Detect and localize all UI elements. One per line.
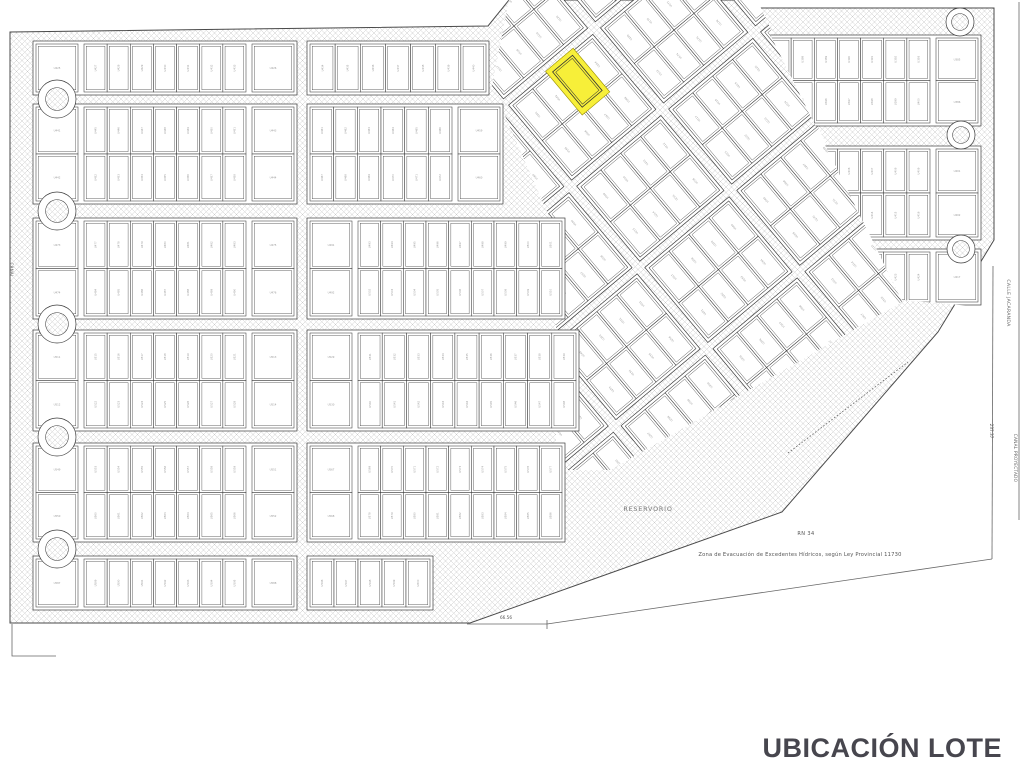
svg-text:U477: U477 bbox=[94, 241, 98, 248]
svg-text:U498: U498 bbox=[481, 241, 485, 248]
svg-text:U582: U582 bbox=[458, 512, 462, 519]
label-canal-left: CANAL bbox=[9, 263, 14, 278]
svg-text:U423: U423 bbox=[893, 273, 897, 280]
svg-text:U594: U594 bbox=[209, 579, 213, 586]
svg-text:U451: U451 bbox=[232, 127, 236, 134]
svg-text:U367: U367 bbox=[967, 360, 975, 368]
label-route: RN 34 bbox=[797, 531, 814, 537]
svg-text:U491: U491 bbox=[328, 243, 335, 247]
svg-text:U407: U407 bbox=[870, 167, 874, 174]
svg-text:U537: U537 bbox=[513, 353, 517, 360]
svg-text:U396: U396 bbox=[824, 98, 828, 105]
svg-text:U503: U503 bbox=[390, 288, 394, 295]
svg-text:U540: U540 bbox=[368, 400, 372, 407]
svg-text:U557: U557 bbox=[186, 465, 190, 472]
svg-text:U485: U485 bbox=[117, 288, 121, 295]
svg-text:U565: U565 bbox=[209, 512, 213, 519]
svg-text:U521: U521 bbox=[232, 353, 236, 360]
svg-text:U409: U409 bbox=[916, 167, 920, 174]
svg-text:U561: U561 bbox=[117, 512, 121, 519]
svg-text:U544: U544 bbox=[465, 400, 469, 407]
svg-text:U329: U329 bbox=[1014, 123, 1022, 131]
svg-text:U599: U599 bbox=[392, 579, 396, 586]
svg-text:U489: U489 bbox=[209, 288, 213, 295]
svg-text:U344: U344 bbox=[712, 575, 720, 583]
svg-text:U392: U392 bbox=[893, 55, 897, 62]
svg-text:U427: U427 bbox=[94, 64, 98, 71]
label-canal-proyectado: CANAL PROYECTADO bbox=[1013, 434, 1018, 483]
svg-text:U592: U592 bbox=[163, 579, 167, 586]
svg-text:U588: U588 bbox=[270, 581, 277, 585]
svg-text:U542: U542 bbox=[417, 400, 421, 407]
svg-text:U364: U364 bbox=[958, 308, 966, 316]
svg-text:U558: U558 bbox=[209, 465, 213, 472]
svg-text:U454: U454 bbox=[140, 174, 144, 181]
svg-text:U488: U488 bbox=[186, 288, 190, 295]
svg-text:U478: U478 bbox=[117, 241, 121, 248]
svg-text:U058: U058 bbox=[325, 9, 333, 17]
svg-text:U415: U415 bbox=[893, 211, 897, 218]
plat-map: U001U002U003U004U005U006U007U008U009U010… bbox=[0, 0, 1024, 768]
svg-text:U444: U444 bbox=[270, 176, 277, 180]
svg-text:U338: U338 bbox=[642, 573, 650, 581]
svg-text:U456: U456 bbox=[186, 174, 190, 181]
svg-text:U439: U439 bbox=[446, 64, 450, 71]
svg-text:U438: U438 bbox=[421, 64, 425, 71]
svg-text:U562: U562 bbox=[140, 512, 144, 519]
svg-text:U480: U480 bbox=[163, 241, 167, 248]
svg-text:U449: U449 bbox=[186, 127, 190, 134]
svg-text:U358: U358 bbox=[856, 454, 864, 462]
svg-text:U373: U373 bbox=[1020, 316, 1024, 324]
svg-text:U506: U506 bbox=[458, 288, 462, 295]
svg-text:U286: U286 bbox=[995, 60, 1003, 68]
svg-text:U460: U460 bbox=[476, 176, 483, 180]
svg-text:U360: U360 bbox=[895, 420, 903, 428]
svg-text:U447: U447 bbox=[140, 127, 144, 134]
svg-text:U490: U490 bbox=[232, 288, 236, 295]
svg-text:U500: U500 bbox=[526, 241, 530, 248]
svg-text:U563: U563 bbox=[163, 512, 167, 519]
svg-text:U430: U430 bbox=[163, 64, 167, 71]
svg-text:U579: U579 bbox=[390, 512, 394, 519]
svg-text:U474: U474 bbox=[54, 290, 61, 294]
svg-text:U572: U572 bbox=[435, 465, 439, 472]
svg-text:U553: U553 bbox=[94, 465, 98, 472]
svg-text:U389: U389 bbox=[824, 55, 828, 62]
svg-text:U598: U598 bbox=[368, 579, 372, 586]
svg-text:U443: U443 bbox=[270, 129, 277, 133]
svg-text:U584: U584 bbox=[503, 512, 507, 519]
svg-text:U576: U576 bbox=[526, 465, 530, 472]
svg-text:U548: U548 bbox=[562, 400, 566, 407]
svg-text:U401: U401 bbox=[954, 169, 961, 173]
svg-text:U455: U455 bbox=[163, 174, 167, 181]
svg-text:U386: U386 bbox=[954, 100, 961, 104]
svg-text:U512: U512 bbox=[54, 402, 61, 406]
svg-text:U569: U569 bbox=[367, 465, 371, 472]
svg-text:U369: U369 bbox=[990, 281, 998, 289]
svg-text:U505: U505 bbox=[435, 288, 439, 295]
southwest-corner-mark bbox=[12, 624, 56, 656]
svg-text:U587: U587 bbox=[54, 581, 61, 585]
svg-text:U446: U446 bbox=[117, 127, 121, 134]
svg-text:U507: U507 bbox=[481, 288, 485, 295]
svg-text:U519: U519 bbox=[186, 353, 190, 360]
ubicacion-lote-page: U001U002U003U004U005U006U007U008U009U010… bbox=[0, 0, 1024, 768]
label-zona: Zona de Evacuación de Excedentes Hídrico… bbox=[698, 551, 901, 558]
svg-text:U343: U343 bbox=[692, 591, 700, 599]
svg-text:U534: U534 bbox=[441, 353, 445, 360]
svg-text:U571: U571 bbox=[413, 465, 417, 472]
svg-text:U550: U550 bbox=[54, 514, 61, 518]
svg-text:U513: U513 bbox=[270, 355, 277, 359]
svg-text:U495: U495 bbox=[413, 241, 417, 248]
svg-text:U530: U530 bbox=[328, 402, 335, 406]
svg-text:U531: U531 bbox=[368, 353, 372, 360]
svg-text:U522: U522 bbox=[94, 400, 98, 407]
svg-text:U393: U393 bbox=[916, 55, 920, 62]
svg-text:U529: U529 bbox=[328, 355, 335, 359]
svg-text:U450: U450 bbox=[209, 127, 213, 134]
svg-text:U570: U570 bbox=[390, 465, 394, 472]
svg-text:U573: U573 bbox=[458, 465, 462, 472]
svg-text:U525: U525 bbox=[163, 400, 167, 407]
svg-text:U535: U535 bbox=[465, 353, 469, 360]
svg-text:U470: U470 bbox=[391, 174, 395, 181]
svg-text:U465: U465 bbox=[415, 127, 419, 134]
svg-text:U476: U476 bbox=[270, 290, 277, 294]
svg-text:U445: U445 bbox=[94, 127, 98, 134]
svg-text:U008: U008 bbox=[235, 6, 243, 14]
svg-text:U366: U366 bbox=[948, 377, 956, 385]
svg-text:U408: U408 bbox=[893, 167, 897, 174]
svg-text:U502: U502 bbox=[367, 288, 371, 295]
svg-text:U591: U591 bbox=[140, 579, 144, 586]
svg-text:U462: U462 bbox=[344, 127, 348, 134]
svg-text:U523: U523 bbox=[117, 400, 121, 407]
svg-text:U442: U442 bbox=[54, 176, 61, 180]
svg-text:U370: U370 bbox=[1010, 264, 1018, 272]
svg-text:U577: U577 bbox=[549, 465, 553, 472]
east-boundary bbox=[992, 266, 993, 559]
svg-text:U596: U596 bbox=[320, 579, 324, 586]
svg-text:U539: U539 bbox=[562, 353, 566, 360]
svg-text:U441: U441 bbox=[54, 129, 61, 133]
svg-text:U585: U585 bbox=[526, 512, 530, 519]
svg-text:U472: U472 bbox=[438, 174, 442, 181]
svg-text:U567: U567 bbox=[328, 467, 335, 471]
svg-text:U390: U390 bbox=[847, 55, 851, 62]
svg-text:U509: U509 bbox=[526, 288, 530, 295]
svg-text:U359: U359 bbox=[876, 437, 884, 445]
svg-text:U552: U552 bbox=[270, 514, 277, 518]
svg-text:U440: U440 bbox=[471, 64, 475, 71]
svg-text:U435: U435 bbox=[346, 64, 350, 71]
svg-text:U399: U399 bbox=[893, 98, 897, 105]
svg-text:U494: U494 bbox=[390, 241, 394, 248]
svg-text:U574: U574 bbox=[481, 465, 485, 472]
svg-text:U341: U341 bbox=[652, 625, 660, 633]
svg-text:U342: U342 bbox=[672, 608, 680, 616]
svg-text:U526: U526 bbox=[186, 400, 190, 407]
svg-text:U578: U578 bbox=[367, 512, 371, 519]
svg-text:U546: U546 bbox=[513, 400, 517, 407]
svg-text:U586: U586 bbox=[549, 512, 553, 519]
svg-text:U397: U397 bbox=[847, 98, 851, 105]
svg-text:U237: U237 bbox=[907, 0, 915, 4]
svg-text:U365: U365 bbox=[928, 393, 936, 401]
svg-text:U514: U514 bbox=[270, 402, 277, 406]
svg-text:U564: U564 bbox=[186, 512, 190, 519]
svg-text:U437: U437 bbox=[396, 64, 400, 71]
svg-text:U559: U559 bbox=[232, 465, 236, 472]
svg-text:U551: U551 bbox=[270, 467, 277, 471]
svg-text:U528: U528 bbox=[232, 400, 236, 407]
svg-text:U600: U600 bbox=[416, 579, 420, 586]
svg-text:U328: U328 bbox=[1011, 185, 1019, 193]
svg-text:U473: U473 bbox=[54, 243, 61, 247]
svg-text:U352: U352 bbox=[804, 498, 812, 506]
svg-text:U499: U499 bbox=[503, 241, 507, 248]
svg-text:U497: U497 bbox=[458, 241, 462, 248]
svg-text:U532: U532 bbox=[392, 353, 396, 360]
svg-text:U432: U432 bbox=[209, 64, 213, 71]
svg-text:U448: U448 bbox=[163, 127, 167, 134]
svg-text:U351: U351 bbox=[784, 514, 792, 522]
svg-text:U549: U549 bbox=[54, 467, 61, 471]
svg-text:U428: U428 bbox=[117, 64, 121, 71]
svg-text:U463: U463 bbox=[367, 127, 371, 134]
svg-text:U114: U114 bbox=[485, 13, 493, 21]
svg-text:U589: U589 bbox=[94, 579, 98, 586]
svg-text:U433: U433 bbox=[232, 64, 236, 71]
svg-text:U536: U536 bbox=[489, 353, 493, 360]
svg-text:U541: U541 bbox=[392, 400, 396, 407]
svg-text:U461: U461 bbox=[320, 127, 324, 134]
svg-text:U466: U466 bbox=[438, 127, 442, 134]
svg-text:U566: U566 bbox=[232, 512, 236, 519]
svg-text:U508: U508 bbox=[503, 288, 507, 295]
svg-text:U575: U575 bbox=[503, 465, 507, 472]
svg-text:U459: U459 bbox=[476, 129, 483, 133]
svg-text:U464: U464 bbox=[391, 127, 395, 134]
svg-text:U524: U524 bbox=[140, 400, 144, 407]
svg-text:U431: U431 bbox=[186, 64, 190, 71]
svg-text:U357: U357 bbox=[836, 471, 844, 479]
svg-text:U002: U002 bbox=[165, 4, 173, 12]
svg-text:U424: U424 bbox=[916, 273, 920, 280]
label-dim-south: 66.56 bbox=[500, 615, 512, 620]
svg-text:U468: U468 bbox=[344, 174, 348, 181]
svg-text:U479: U479 bbox=[140, 241, 144, 248]
svg-text:U368: U368 bbox=[987, 343, 995, 351]
svg-text:U595: U595 bbox=[232, 579, 236, 586]
svg-text:U467: U467 bbox=[320, 174, 324, 181]
svg-text:U554: U554 bbox=[117, 465, 121, 472]
svg-text:U406: U406 bbox=[847, 167, 851, 174]
svg-text:U481: U481 bbox=[186, 241, 190, 248]
svg-text:U425: U425 bbox=[54, 66, 61, 70]
svg-text:U429: U429 bbox=[140, 64, 144, 71]
svg-text:U416: U416 bbox=[916, 211, 920, 218]
svg-text:U527: U527 bbox=[209, 400, 213, 407]
svg-text:U469: U469 bbox=[367, 174, 371, 181]
svg-text:U350: U350 bbox=[764, 531, 772, 539]
svg-text:U583: U583 bbox=[481, 512, 485, 519]
svg-text:U457: U457 bbox=[209, 174, 213, 181]
svg-text:U453: U453 bbox=[117, 174, 121, 181]
svg-text:U426: U426 bbox=[270, 66, 277, 70]
svg-text:U434: U434 bbox=[321, 64, 325, 71]
svg-text:U593: U593 bbox=[186, 579, 190, 586]
svg-text:U452: U452 bbox=[94, 174, 98, 181]
svg-text:U484: U484 bbox=[94, 288, 98, 295]
svg-text:U064: U064 bbox=[395, 10, 403, 18]
svg-text:U486: U486 bbox=[140, 288, 144, 295]
label-calle-jacaranda: CALLE JACARANDA bbox=[1005, 279, 1011, 327]
svg-text:U545: U545 bbox=[489, 400, 493, 407]
svg-text:U560: U560 bbox=[94, 512, 98, 519]
svg-text:U436: U436 bbox=[371, 64, 375, 71]
svg-text:U337: U337 bbox=[622, 590, 630, 598]
svg-text:U515: U515 bbox=[94, 353, 98, 360]
svg-text:U511: U511 bbox=[54, 355, 61, 359]
svg-text:U471: U471 bbox=[415, 174, 419, 181]
label-reservorio: RESERVORIO bbox=[623, 505, 672, 513]
svg-text:U556: U556 bbox=[163, 465, 167, 472]
page-caption: UBICACIÓN LOTE bbox=[763, 733, 1003, 764]
svg-text:U388: U388 bbox=[801, 55, 805, 62]
svg-text:U001: U001 bbox=[145, 21, 153, 29]
svg-text:U501: U501 bbox=[549, 241, 553, 248]
svg-text:U520: U520 bbox=[209, 353, 213, 360]
svg-text:U580: U580 bbox=[413, 512, 417, 519]
svg-text:U581: U581 bbox=[435, 512, 439, 519]
svg-text:U547: U547 bbox=[538, 400, 542, 407]
svg-text:U492: U492 bbox=[328, 290, 335, 294]
svg-text:U385: U385 bbox=[954, 57, 961, 61]
svg-text:U487: U487 bbox=[163, 288, 167, 295]
svg-text:U538: U538 bbox=[538, 353, 542, 360]
svg-text:U458: U458 bbox=[232, 174, 236, 181]
svg-text:U400: U400 bbox=[916, 98, 920, 105]
svg-text:U398: U398 bbox=[870, 98, 874, 105]
svg-text:U518: U518 bbox=[163, 353, 167, 360]
svg-text:U568: U568 bbox=[328, 514, 335, 518]
svg-text:U391: U391 bbox=[870, 55, 874, 62]
svg-text:U475: U475 bbox=[270, 243, 277, 247]
svg-text:U543: U543 bbox=[441, 400, 445, 407]
svg-text:U493: U493 bbox=[367, 241, 371, 248]
svg-text:U517: U517 bbox=[140, 353, 144, 360]
svg-text:U555: U555 bbox=[140, 465, 144, 472]
svg-text:U482: U482 bbox=[209, 241, 213, 248]
label-dim-east: 237.37 bbox=[989, 424, 994, 439]
svg-text:U414: U414 bbox=[870, 211, 874, 218]
svg-text:U516: U516 bbox=[117, 353, 121, 360]
svg-text:U483: U483 bbox=[232, 241, 236, 248]
svg-text:U590: U590 bbox=[117, 579, 121, 586]
svg-text:U339: U339 bbox=[662, 556, 670, 564]
svg-text:U533: U533 bbox=[417, 353, 421, 360]
svg-text:U417: U417 bbox=[954, 275, 961, 279]
svg-text:U496: U496 bbox=[435, 241, 439, 248]
svg-text:U402: U402 bbox=[954, 213, 961, 217]
svg-text:U504: U504 bbox=[413, 288, 417, 295]
svg-text:U597: U597 bbox=[344, 579, 348, 586]
svg-text:U510: U510 bbox=[549, 288, 553, 295]
